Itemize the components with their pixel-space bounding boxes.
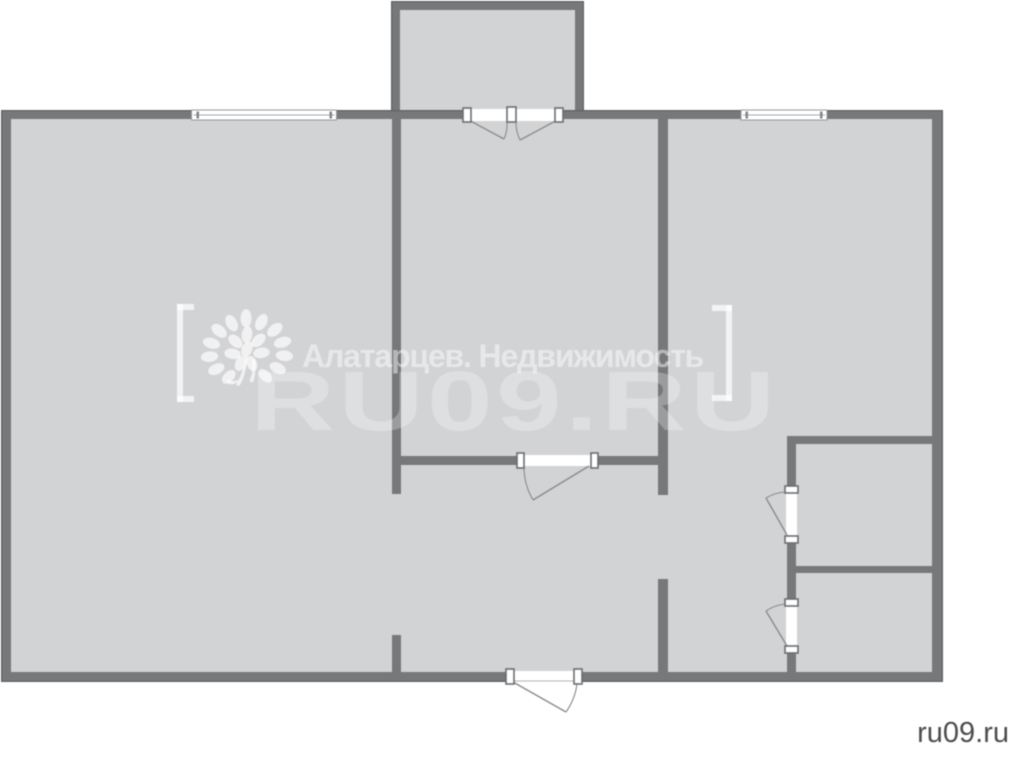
svg-text:ru09.ru: ru09.ru [917,717,1009,749]
svg-text:RU09.RU: RU09.RU [250,354,779,449]
